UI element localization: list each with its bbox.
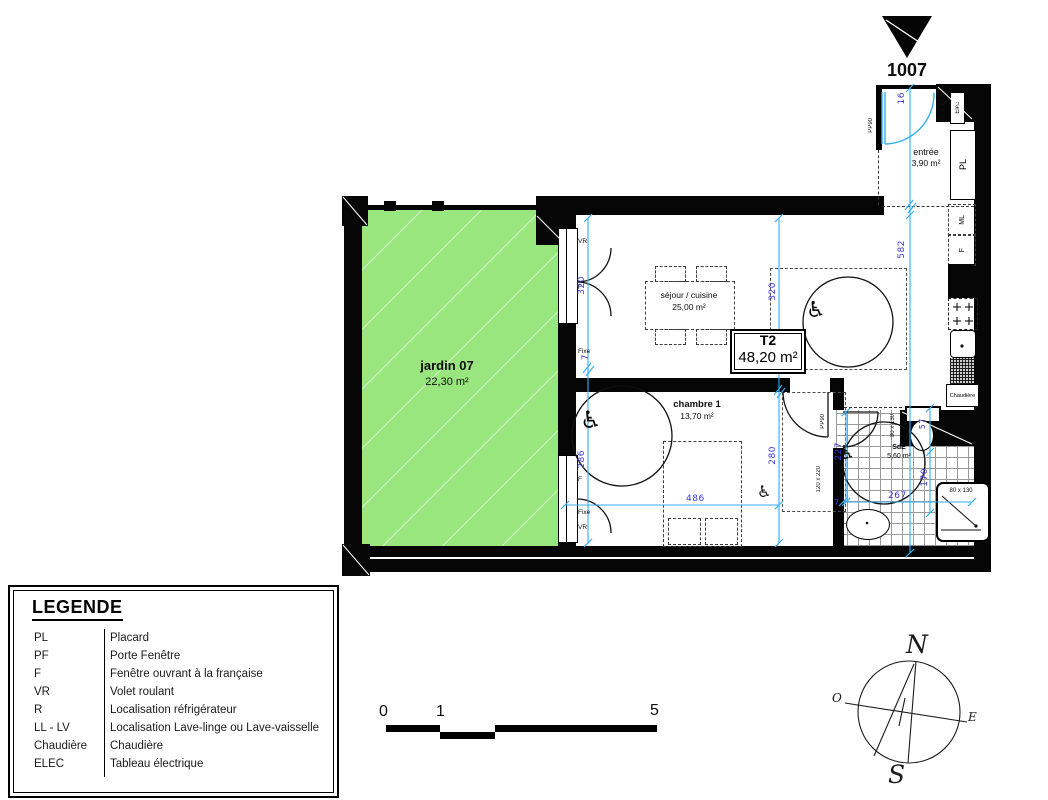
unit-area: 48,20 m² (732, 349, 804, 366)
wheelchair-icon: ♿ (757, 482, 771, 501)
legend-title: LEGENDE (32, 597, 123, 621)
compass-west: O (832, 691, 842, 705)
room-area-entree: 3,90 m² (896, 158, 956, 168)
entrance-door (882, 92, 934, 144)
legend-key: LL - LV (34, 722, 100, 734)
legend-desc: Placard (110, 632, 149, 644)
legend-key: ELEC (34, 758, 100, 770)
legend-desc: Chaudière (110, 740, 163, 752)
legend-desc: Tableau électrique (110, 758, 203, 770)
room-name-sejour: séjour / cuisine (639, 290, 739, 300)
compass-north: N (906, 630, 928, 659)
legend-desc: Volet roulant (110, 686, 174, 698)
dim-57: 57 (918, 418, 927, 429)
floorplan-page: 20 x 220 Elec PL ML F Chaudière 80 x 130 (0, 0, 1048, 800)
scale-bar-segment (495, 725, 657, 732)
compass-rose (845, 661, 967, 763)
dim-227: 227 (834, 442, 844, 461)
legend-key: PL (34, 632, 100, 644)
unit-type: T2 (732, 332, 804, 349)
room-area-sde: 5,60 m² (874, 453, 924, 460)
tag-door-size: 120 x 220 (816, 466, 822, 492)
compass-south: S (888, 760, 905, 789)
scale-bar-segment (386, 725, 440, 732)
legend-key: PF (34, 650, 100, 662)
dim-320-left: 320 (577, 276, 587, 295)
dim-7b: 7 (834, 498, 840, 507)
scale-5: 5 (650, 702, 659, 720)
dim-320-mid: 320 (768, 282, 778, 301)
legend-key: F (34, 668, 100, 680)
legend-key: VR (34, 686, 100, 698)
tag-vr: VR (578, 238, 587, 245)
tag-f: F (578, 476, 582, 483)
unit-number: 1007 (880, 60, 934, 81)
room-area-sejour: 25,00 m² (639, 302, 739, 312)
dim-286: 286 (577, 450, 587, 469)
legend-box: LEGENDE PL Placard PF Porte Fenêtre F Fe… (8, 585, 339, 798)
scale-1: 1 (436, 703, 445, 721)
tag-pp90-entree: PP90 (868, 118, 874, 133)
room-area-chambre: 13,70 m² (647, 411, 747, 421)
dim-280: 280 (768, 446, 778, 465)
tag-pp90-chambre: PP90 (820, 414, 826, 429)
legend-desc: Localisation Lave-linge ou Lave-vaissell… (110, 722, 319, 734)
cooktop-burners (953, 303, 973, 325)
room-name-sde: SdE (874, 444, 924, 451)
legend-divider (104, 629, 105, 777)
tag-vr: VR (578, 524, 587, 531)
room-area-jardin: 22,30 m² (387, 376, 507, 388)
unit-type-box: T2 48,20 m² (730, 329, 806, 374)
tag-wc-size: 80 x 130 (890, 414, 896, 437)
legend-desc: Porte Fenêtre (110, 650, 180, 662)
door-arcs (572, 248, 925, 533)
scale-bar-segment (440, 732, 495, 739)
tag-fixe: Fixe (578, 509, 590, 516)
dim-7: 7 (581, 354, 591, 360)
dim-582: 582 (897, 240, 907, 259)
dim-486: 486 (686, 494, 705, 504)
legend-desc: Fenêtre ouvrant à la française (110, 668, 263, 680)
room-name-chambre: chambre 1 (647, 399, 747, 410)
wheelchair-icon: ♿ (580, 406, 602, 434)
compass-east: E (968, 710, 977, 724)
room-name-entree: entrée (896, 147, 956, 157)
dim-267: 267 (888, 491, 907, 501)
legend-key: R (34, 704, 100, 716)
legend-desc: Localisation réfrigérateur (110, 704, 237, 716)
legend-key: Chaudière (34, 740, 100, 752)
dim-16: 16 (897, 92, 907, 104)
scale-0: 0 (379, 703, 388, 721)
wheelchair-icon: ♿ (806, 298, 826, 323)
dim-170: 170 (920, 468, 930, 487)
room-name-jardin: jardin 07 (387, 358, 507, 373)
